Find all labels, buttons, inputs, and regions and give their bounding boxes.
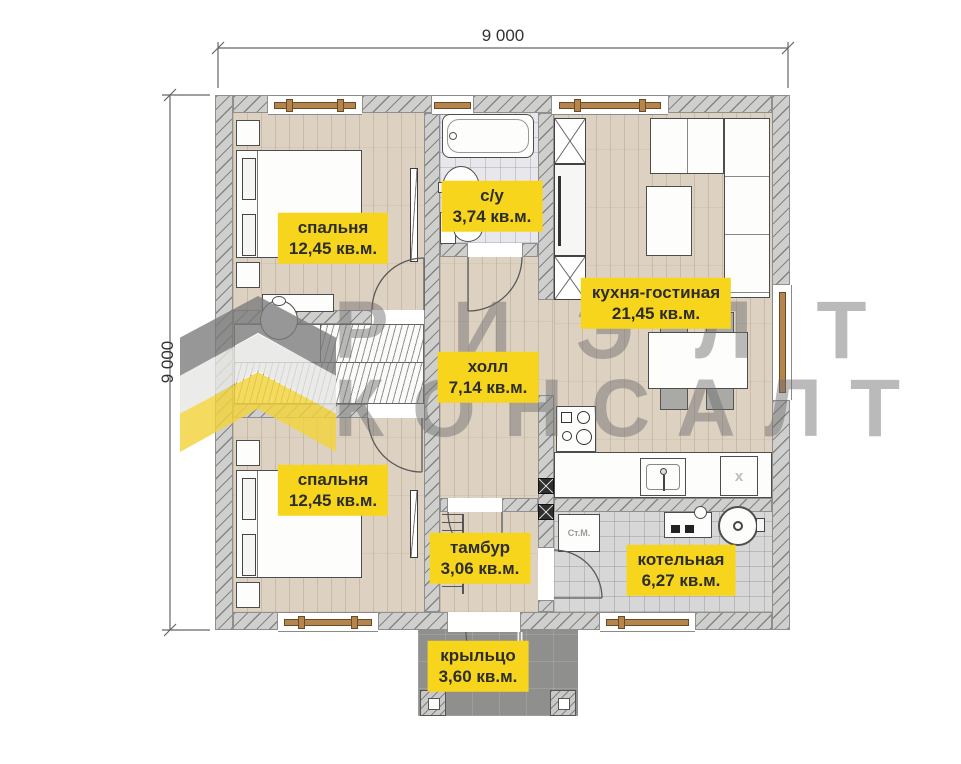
room-label-boiler: котельная 6,27 кв.м. bbox=[627, 545, 736, 596]
bathtub-faucet bbox=[449, 132, 457, 140]
column-core bbox=[558, 698, 570, 710]
room-area: 3,74 кв.м. bbox=[453, 206, 532, 227]
room-name: спальня bbox=[289, 217, 377, 238]
equipment-block bbox=[671, 525, 680, 533]
window-bedroom-bottom bbox=[278, 612, 378, 632]
wall-top-d bbox=[668, 95, 772, 113]
room-name: кухня-гостиная bbox=[592, 282, 720, 303]
porch-column-right bbox=[550, 690, 576, 716]
bathtub bbox=[442, 114, 534, 158]
pillow bbox=[242, 158, 256, 200]
doorway-entry bbox=[448, 612, 520, 632]
room-name: крыльцо bbox=[439, 645, 518, 666]
dimension-left-text: 9 000 bbox=[158, 322, 178, 402]
window-cap bbox=[298, 616, 305, 629]
room-area: 3,60 кв.м. bbox=[439, 666, 518, 687]
boiler-flue bbox=[538, 478, 554, 494]
room-label-hall: холл 7,14 кв.м. bbox=[438, 352, 539, 403]
room-area: 7,14 кв.м. bbox=[449, 377, 528, 398]
window-cap bbox=[351, 616, 358, 629]
doorway-boiler bbox=[538, 548, 554, 600]
coffee-table bbox=[646, 186, 692, 256]
boiler-pipe bbox=[756, 518, 765, 532]
room-area: 12,45 кв.м. bbox=[289, 490, 377, 511]
window-cap bbox=[574, 99, 581, 112]
wall-bottom-d bbox=[695, 612, 772, 630]
sink-faucet-stem bbox=[663, 475, 665, 491]
room-area: 21,45 кв.м. bbox=[592, 303, 720, 324]
wall-bottom-b bbox=[378, 612, 448, 630]
window-cap bbox=[618, 616, 625, 629]
window-bedroom-top bbox=[268, 95, 362, 115]
nightstand bbox=[236, 582, 260, 608]
cabinet-x-mark: x bbox=[720, 456, 758, 496]
wall-bathroom-hall-a bbox=[440, 243, 468, 257]
window-frame bbox=[434, 102, 470, 109]
nightstand bbox=[236, 440, 260, 466]
wall-mirror-bedroom-bottom bbox=[410, 490, 418, 558]
sink-faucet bbox=[660, 468, 667, 475]
window-cap bbox=[337, 99, 344, 112]
doorway-bathroom bbox=[468, 243, 522, 257]
room-label-vestibule: тамбур 3,06 кв.м. bbox=[430, 533, 531, 584]
equipment-block bbox=[685, 525, 694, 533]
sofa-top-section bbox=[650, 118, 724, 174]
wall-bathroom-hall-b bbox=[522, 243, 538, 257]
bed-headboard-line bbox=[257, 471, 258, 577]
wall-top-b bbox=[362, 95, 432, 113]
room-label-bedroom-top: спальня 12,45 кв.м. bbox=[278, 213, 388, 264]
room-label-bedroom-bottom: спальня 12,45 кв.м. bbox=[278, 465, 388, 516]
room-area: 12,45 кв.м. bbox=[289, 238, 377, 259]
bed-headboard-line bbox=[257, 151, 258, 257]
doorway-vestibule bbox=[448, 498, 502, 512]
equipment-valve bbox=[694, 506, 707, 519]
room-name: тамбур bbox=[441, 537, 520, 558]
wall-bottom-a bbox=[233, 612, 278, 630]
room-label-bathroom: с/у 3,74 кв.м. bbox=[442, 181, 543, 232]
window-cap bbox=[286, 99, 293, 112]
room-name: спальня bbox=[289, 469, 377, 490]
bathtub-inner bbox=[447, 119, 529, 153]
wall-bottom-c bbox=[520, 612, 600, 630]
room-name: котельная bbox=[638, 549, 725, 570]
kitchen-sink bbox=[640, 458, 686, 496]
sofa-right-section bbox=[724, 118, 770, 298]
room-label-kitchen-living: кухня-гостиная 21,45 кв.м. bbox=[581, 278, 731, 329]
room-name: с/у bbox=[453, 185, 532, 206]
tv bbox=[558, 176, 561, 246]
pillow bbox=[242, 534, 256, 576]
room-area: 6,27 кв.м. bbox=[638, 570, 725, 591]
porch-column-left bbox=[420, 690, 446, 716]
washing-machine-label: Ст.М. bbox=[558, 514, 600, 552]
room-name: холл bbox=[449, 356, 528, 377]
boiler-unit bbox=[718, 506, 758, 546]
wall-hall-vestibule-b bbox=[502, 498, 538, 512]
column-core bbox=[428, 698, 440, 710]
wall-top-c bbox=[473, 95, 552, 113]
window-bathroom bbox=[432, 95, 473, 115]
room-label-porch: крыльцо 3,60 кв.м. bbox=[428, 641, 529, 692]
boiler-core bbox=[733, 521, 743, 531]
vent-shaft-top bbox=[554, 118, 586, 164]
wall-vestibule-boiler-lower bbox=[538, 600, 554, 612]
dimension-top-text: 9 000 bbox=[463, 26, 543, 46]
window-kitchen bbox=[552, 95, 668, 115]
room-area: 3,06 кв.м. bbox=[441, 558, 520, 579]
floor-plan-canvas: x Ст.М. bbox=[0, 0, 961, 764]
wall-top-a bbox=[233, 95, 268, 113]
boiler-flue bbox=[538, 504, 554, 520]
nightstand bbox=[236, 262, 260, 288]
window-boiler bbox=[600, 612, 695, 632]
wall-hall-vestibule-a bbox=[440, 498, 448, 512]
nightstand bbox=[236, 120, 260, 146]
wall-right-upper bbox=[772, 95, 790, 285]
watermark-word-2: КОНСАЛТ bbox=[334, 368, 928, 450]
plant-pot-knob bbox=[272, 296, 286, 306]
pillow bbox=[242, 478, 256, 520]
pillow bbox=[242, 214, 256, 256]
window-cap bbox=[639, 99, 646, 112]
wall-mirror-bedroom-top bbox=[410, 168, 418, 262]
